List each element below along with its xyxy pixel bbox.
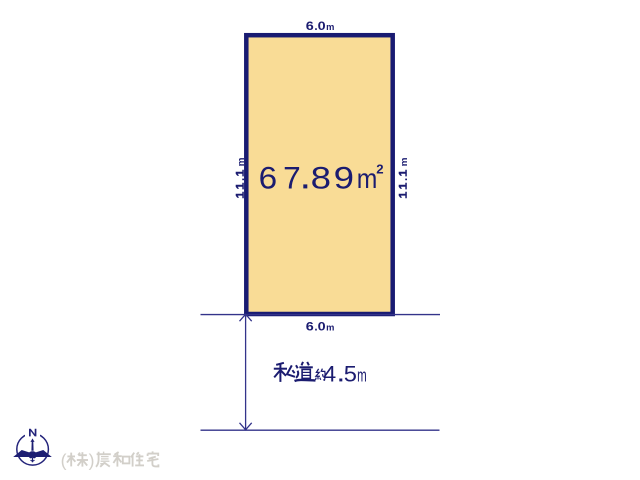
svg-text:6: 6 <box>259 160 278 195</box>
svg-text:9: 9 <box>334 160 354 195</box>
svg-text:.: . <box>397 178 410 181</box>
svg-text:m: m <box>326 22 334 32</box>
svg-text:m: m <box>326 323 334 333</box>
svg-text:8: 8 <box>311 160 331 195</box>
svg-text:6: 6 <box>306 321 315 334</box>
svg-text:m: m <box>357 163 378 194</box>
svg-text:m: m <box>236 158 247 167</box>
svg-text:5: 5 <box>344 361 357 386</box>
svg-text:7: 7 <box>283 160 301 195</box>
svg-text:m: m <box>399 158 410 167</box>
svg-text:2: 2 <box>376 162 383 177</box>
svg-text:.: . <box>234 178 247 181</box>
svg-text:0: 0 <box>318 20 326 33</box>
svg-text:0: 0 <box>318 321 326 334</box>
svg-text:): ) <box>89 451 95 471</box>
svg-text:6: 6 <box>306 20 315 33</box>
svg-text:4: 4 <box>323 361 336 386</box>
svg-text:(: ( <box>61 451 67 471</box>
svg-text:m: m <box>357 365 367 385</box>
